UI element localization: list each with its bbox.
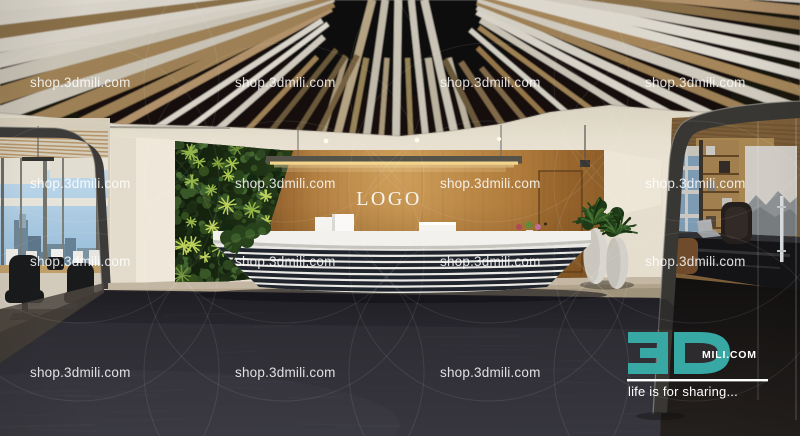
svg-text:shop.3dmili.com: shop.3dmili.com — [235, 75, 336, 90]
svg-text:shop.3dmili.com: shop.3dmili.com — [440, 75, 541, 90]
svg-text:shop.3dmili.com: shop.3dmili.com — [645, 75, 746, 90]
svg-text:life is for sharing...: life is for sharing... — [628, 384, 738, 399]
svg-text:shop.3dmili.com: shop.3dmili.com — [30, 365, 131, 380]
svg-text:MILI.COM: MILI.COM — [702, 349, 757, 361]
svg-text:shop.3dmili.com: shop.3dmili.com — [235, 365, 336, 380]
svg-text:shop.3dmili.com: shop.3dmili.com — [235, 254, 336, 269]
svg-text:shop.3dmili.com: shop.3dmili.com — [440, 254, 541, 269]
svg-text:shop.3dmili.com: shop.3dmili.com — [30, 254, 131, 269]
svg-text:shop.3dmili.com: shop.3dmili.com — [440, 176, 541, 191]
svg-text:shop.3dmili.com: shop.3dmili.com — [235, 176, 336, 191]
svg-text:shop.3dmili.com: shop.3dmili.com — [645, 176, 746, 191]
svg-text:shop.3dmili.com: shop.3dmili.com — [645, 254, 746, 269]
svg-text:shop.3dmili.com: shop.3dmili.com — [440, 365, 541, 380]
svg-text:shop.3dmili.com: shop.3dmili.com — [30, 176, 131, 191]
svg-text:shop.3dmili.com: shop.3dmili.com — [30, 75, 131, 90]
